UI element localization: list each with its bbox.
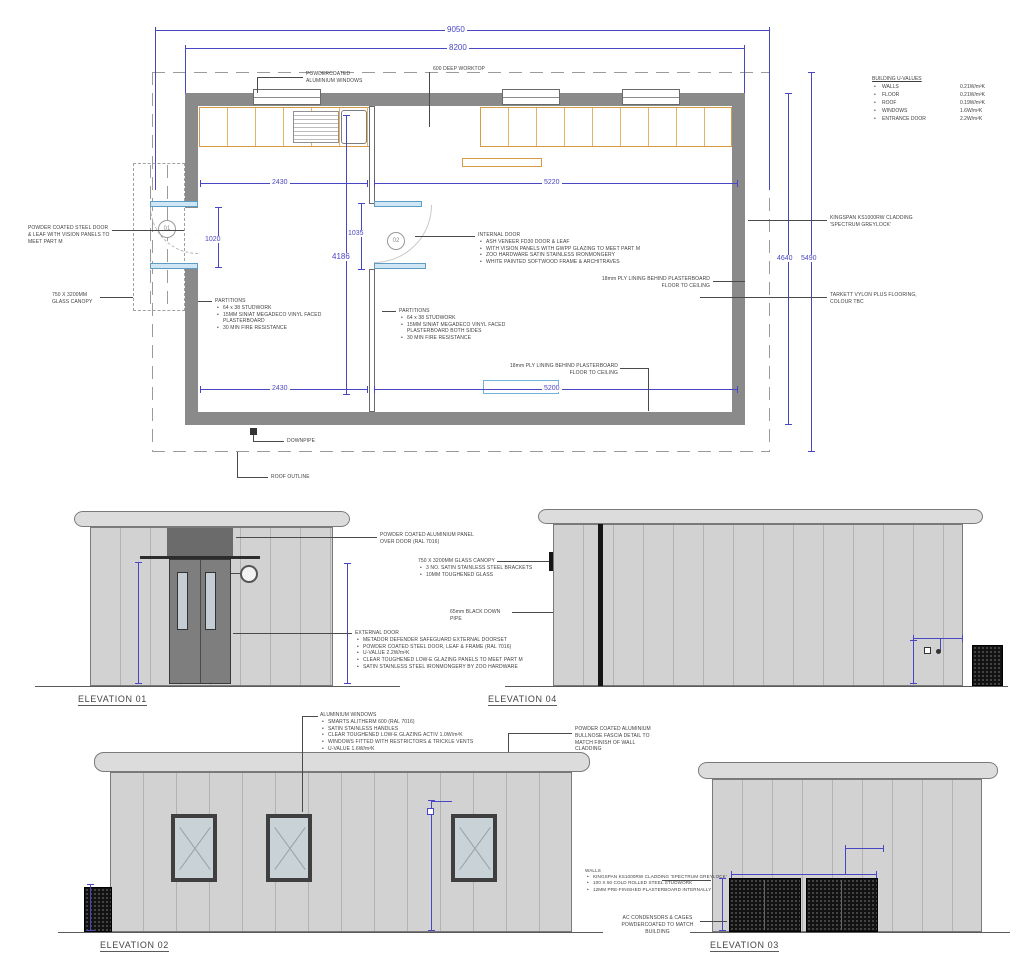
dim-line: 9050	[155, 30, 770, 31]
elev01-door-vision-panel	[205, 572, 216, 630]
u-value-name: ROOF	[882, 100, 896, 106]
dim-line	[845, 848, 884, 849]
leader-line	[648, 368, 649, 411]
elev03-ground-line	[690, 932, 1010, 933]
leader-line	[508, 733, 572, 734]
note-item: 3 NO. SATIN STAINLESS STEEL BRACKETS	[418, 565, 548, 572]
leader-line	[429, 72, 430, 127]
dim-line	[138, 562, 139, 684]
leader-line	[100, 297, 133, 298]
note-item: U-VALUE 2.2W/m²K	[355, 650, 545, 657]
leader-line	[748, 220, 827, 221]
elev02-fascia-label: POWDER COATED ALUMINIUM BULLNOSE FASCIA …	[575, 726, 657, 753]
drawing-canvas: 9050 8200 02 01 2430 5220 1020 1035 418	[0, 0, 1024, 968]
dim-inner-depth-right: 4640	[775, 255, 795, 262]
dim-line	[722, 878, 723, 931]
elev01-ground-line	[35, 686, 400, 687]
u-value-value: 0.19W/m²K	[960, 100, 985, 106]
u-value-value: 0.21W/m²K	[960, 84, 985, 90]
leader-line	[236, 537, 377, 538]
elev04-vent-fixture	[936, 649, 941, 654]
leader-line	[382, 311, 396, 312]
elev04-title: ELEVATION 04	[488, 694, 557, 706]
plan-roof-outline-label: ROOF OUTLINE	[271, 474, 310, 481]
elev02-ac-condenser	[84, 887, 112, 932]
leader-line	[237, 477, 268, 478]
note-item: POWDER COATED STEEL DOOR, LEAF & FRAME (…	[355, 644, 545, 651]
note-item: 15MM SINIAT MEGADECO VINYL FACED PLASTER…	[399, 322, 542, 336]
elev03-ac-label: AC CONDENSORS & CAGES POWDERCOATED TO MA…	[615, 915, 700, 935]
note-item: 64 x 38 STUDWORK	[399, 315, 559, 322]
plan-partition	[369, 106, 375, 204]
u-value-row: WINDOWS 1.6W/m²K	[872, 108, 1018, 116]
note-title: EXTERNAL DOOR	[355, 630, 545, 637]
plan-worktop-label: 600 DEEP WORKTOP	[433, 66, 513, 73]
note-title: 750 X 3200MM GLASS CANOPY	[418, 558, 548, 565]
u-value-row: ENTRANCE DOOR 2.2W/m²K	[872, 116, 1018, 124]
dim-overall-width: 9050	[445, 26, 467, 34]
elev01-roof	[74, 511, 350, 527]
dim-ext-line	[769, 30, 770, 190]
plan-canopy-label: 750 X 3200MM GLASS CANOPY	[52, 292, 100, 306]
note-item: WINDOWS FITTED WITH RESTRICTORS & TRICKL…	[320, 739, 500, 746]
elev02-windows-note: ALUMINIUM WINDOWS SMARTS ALITHERM 600 (R…	[320, 712, 500, 753]
dim-line: 5200	[374, 389, 738, 390]
plan-worktop-right	[480, 107, 732, 147]
elev04-downpipe	[598, 524, 603, 686]
dim-line	[90, 884, 91, 931]
leader-line	[231, 573, 240, 574]
leader-line	[198, 301, 212, 302]
leader-line	[257, 77, 303, 78]
elev04-roof	[538, 509, 983, 524]
elev03-ac-cage	[806, 878, 878, 932]
u-value-value: 2.2W/m²K	[960, 116, 982, 122]
note-item: METADOR DEFENDER SAFEGUARD EXTERNAL DOOR…	[355, 637, 545, 644]
elev01-external-door-note: EXTERNAL DOOR METADOR DEFENDER SAFEGUARD…	[355, 630, 545, 671]
leader-line	[620, 368, 648, 369]
note-item: ZOO HARDWARE SATIN STAINLESS IRONMONGERY	[478, 252, 688, 259]
dim-line: 2430	[200, 389, 368, 390]
dim-ext-line	[431, 801, 452, 802]
elev02-dim-marker	[427, 808, 434, 815]
roof-outline-bottom	[152, 451, 770, 452]
note-item: CLEAR TOUGHENED LOW-E GLAZING ACTIV 1.0W…	[320, 732, 500, 739]
elev02-roof	[94, 752, 590, 772]
elev01-door-split	[200, 560, 201, 683]
plan-entrance-door-label: POWDER COATED STEEL DOOR & LEAF WITH VIS…	[28, 225, 112, 245]
plan-partitions-right-note: PARTITIONS 64 x 38 STUDWORK 15MM SINIAT …	[399, 308, 559, 342]
door01-leaf	[150, 263, 198, 269]
elev03-ac-cage	[729, 878, 801, 932]
elev02-title: ELEVATION 02	[100, 940, 169, 952]
elev03-cage-divider	[841, 880, 842, 930]
leader-line	[237, 452, 238, 477]
elev04-canopy-edge	[549, 552, 553, 571]
elev03-roof	[698, 762, 998, 779]
leader-line	[257, 77, 258, 93]
note-item: 12MM PRE-FINISHED PLASTERBOARD INTERNALL…	[585, 887, 713, 893]
note-item: 64 x 38 STUDWORK	[215, 305, 355, 312]
downpipe-symbol	[250, 428, 257, 435]
u-value-name: WINDOWS	[882, 108, 907, 114]
note-item: WHITE PAINTED SOFTWOOD FRAME & ARCHITRAV…	[478, 259, 688, 266]
dim-room1-bottom: 2430	[270, 385, 290, 392]
leader-line	[112, 230, 184, 231]
note-item: ASH VENEER FD30 DOOR & LEAF	[478, 239, 688, 246]
elev04-ac-condenser	[972, 645, 1003, 686]
leader-line	[700, 297, 827, 298]
door02-leaf	[374, 263, 426, 269]
note-item: WITH VISION PANELS WITH GWPP GLAZING TO …	[478, 246, 688, 253]
u-value-name: FLOOR	[882, 92, 899, 98]
building-u-values-table: BUILDING U-VALUES WALLS 0.21W/m²K FLOOR …	[872, 76, 1018, 124]
u-value-row: ROOF 0.19W/m²K	[872, 100, 1018, 108]
dim-room1-top: 2430	[270, 179, 290, 186]
u-value-value: 1.6W/m²K	[960, 108, 982, 114]
dim-overall-depth-right: 5490	[799, 255, 819, 262]
leader-line	[302, 716, 318, 717]
note-item: SMARTS ALITHERM 600 (RAL 7016)	[320, 719, 500, 726]
elev03-title: ELEVATION 03	[710, 940, 779, 952]
plan-flooring-label: TARKETT VYLON PLUS FLOORING, COLOUR TBC	[830, 292, 925, 306]
leader-line	[508, 733, 509, 752]
plan-window	[253, 89, 321, 105]
leader-line	[233, 633, 352, 634]
elev01-door-vision-panel	[177, 572, 188, 630]
plan-partitions-left-note: PARTITIONS 64 x 38 STUDWORK 15MM SINIAT …	[215, 298, 355, 332]
note-item: SATIN STAINLESS STEEL IRONMONGERY BY ZOO…	[355, 664, 545, 671]
dim-line: 8200	[185, 48, 745, 49]
door02-tag: 02	[387, 232, 405, 250]
leader-line	[700, 921, 727, 922]
note-title: PARTITIONS	[215, 298, 355, 305]
elev02-window	[266, 814, 312, 882]
dim-room2-top: 5220	[542, 179, 562, 186]
note-title: INTERNAL DOOR	[478, 232, 688, 239]
elev03-walls-note: WALLS KINGSPAN KS1000RW CLADDING 'SPECTR…	[585, 868, 713, 893]
note-item: SATIN STAINLESS HANDLES	[320, 726, 500, 733]
note-item: 10MM TOUGHENED GLASS	[418, 572, 548, 579]
dim-line	[347, 563, 348, 684]
elev02-window	[451, 814, 497, 882]
elev04-socket-fixture	[924, 647, 931, 654]
dim-line: 5220	[374, 183, 738, 184]
leader-line	[415, 236, 475, 237]
u-value-value: 0.21W/m²K	[960, 92, 985, 98]
note-item: 15MM SINIAT MEGADECO VINYL FACED PLASTER…	[215, 312, 343, 326]
elev02-window	[171, 814, 217, 882]
elev01-panel-over-door	[167, 528, 233, 559]
dim-line	[913, 638, 963, 639]
note-title: PARTITIONS	[399, 308, 559, 315]
elev02-ground-line	[58, 932, 603, 933]
plan-ply-label-lower: 18mm PLY LINING BEHIND PLASTERBOARD FLOO…	[503, 363, 618, 377]
u-value-name: WALLS	[882, 84, 899, 90]
elev04-ground-line	[505, 686, 1008, 687]
plan-bench	[462, 158, 542, 167]
leader-line	[302, 716, 303, 812]
plan-window	[502, 89, 560, 105]
door01-tag: 01	[158, 220, 176, 238]
canopy-panel-line	[150, 165, 151, 309]
dim-line	[913, 640, 914, 684]
elev01-title: ELEVATION 01	[78, 694, 147, 706]
plan-ply-label-upper: 18mm PLY LINING BEHIND PLASTERBOARD FLOO…	[595, 276, 710, 290]
elev03-cage-divider	[764, 880, 765, 930]
plan-internal-door-note: INTERNAL DOOR ASH VENEER FD30 DOOR & LEA…	[478, 232, 688, 266]
u-value-row: FLOOR 0.21W/m²K	[872, 92, 1018, 100]
leader-line	[713, 281, 745, 282]
leader-line	[253, 441, 284, 442]
dim-inner-width: 8200	[447, 44, 469, 52]
u-values-title: BUILDING U-VALUES	[872, 76, 1018, 82]
dim-line	[431, 800, 432, 931]
dim-internal-depth: 4186	[330, 253, 352, 261]
note-item: 30 MIN FIRE RESISTANCE	[399, 335, 559, 342]
dim-door1: 1020	[203, 236, 223, 243]
plan-downpipe-label: DOWNPIPE	[287, 438, 315, 445]
note-item: 30 MIN FIRE RESISTANCE	[215, 325, 355, 332]
dim-room2-bottom: 5200	[542, 385, 562, 392]
dim-line	[811, 72, 812, 452]
plan-cladding-label: KINGSPAN KS1000RW CLADDING 'SPECTRUM GRE…	[830, 215, 935, 229]
note-item: U-VALUE 1.6W/m²K	[320, 746, 500, 753]
sink-drainer	[293, 111, 339, 143]
elev01-downpipe-label: 65mm BLACK DOWN PIPE	[450, 609, 512, 623]
elev01-panel-label: POWDER COATED ALUMINIUM PANEL OVER DOOR …	[380, 532, 475, 546]
dim-line	[731, 874, 877, 875]
elev01-canopy-note: 750 X 3200MM GLASS CANOPY 3 NO. SATIN ST…	[418, 558, 548, 578]
dim-line: 2430	[200, 183, 368, 184]
elev04-wall	[553, 524, 963, 686]
u-value-row: WALLS 0.21W/m²K	[872, 84, 1018, 92]
note-item: CLEAR TOUGHENED LOW-E GLAZING PANELS TO …	[355, 657, 545, 664]
dim-door2: 1035	[346, 230, 366, 237]
elev01-light-fixture	[240, 565, 258, 583]
plan-window	[622, 89, 680, 105]
u-value-name: ENTRANCE DOOR	[882, 116, 926, 122]
note-title: ALUMINIUM WINDOWS	[320, 712, 500, 719]
plan-windows-label: POWDERCOATED ALUMINIUM WINDOWS	[306, 71, 368, 85]
